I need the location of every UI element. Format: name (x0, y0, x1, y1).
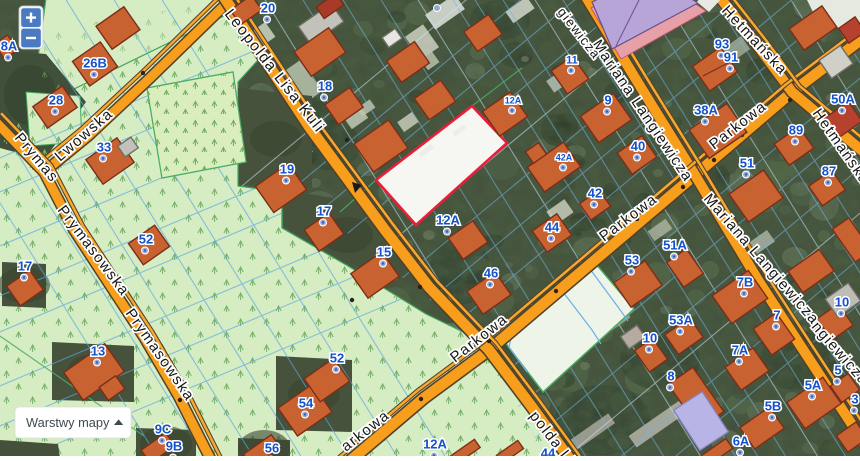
svg-text:52: 52 (330, 351, 344, 366)
svg-text:8: 8 (667, 369, 674, 384)
svg-text:44: 44 (541, 446, 556, 457)
svg-text:18: 18 (318, 79, 332, 94)
svg-text:12A: 12A (436, 213, 460, 228)
svg-text:12A: 12A (505, 96, 522, 106)
svg-text:9C: 9C (155, 422, 172, 437)
svg-text:38A: 38A (694, 103, 718, 118)
svg-text:91: 91 (724, 50, 738, 65)
svg-text:15: 15 (377, 245, 391, 260)
svg-text:5: 5 (834, 363, 841, 378)
svg-text:10: 10 (835, 295, 849, 310)
svg-text:89: 89 (789, 123, 803, 138)
svg-text:9: 9 (604, 93, 611, 108)
svg-text:10: 10 (643, 331, 657, 346)
svg-text:53A: 53A (669, 313, 693, 328)
svg-text:17: 17 (317, 204, 331, 219)
svg-text:5B: 5B (765, 399, 782, 414)
svg-text:87: 87 (822, 164, 836, 179)
svg-text:42: 42 (588, 186, 602, 201)
svg-text:12A: 12A (423, 437, 447, 452)
svg-text:9B: 9B (166, 439, 183, 454)
svg-text:28: 28 (49, 93, 63, 108)
svg-text:3: 3 (851, 392, 858, 407)
svg-text:8A: 8A (1, 39, 18, 54)
svg-text:19: 19 (280, 162, 294, 177)
svg-text:50A: 50A (831, 92, 855, 107)
svg-text:40: 40 (631, 139, 645, 154)
svg-text:33: 33 (97, 140, 111, 155)
svg-text:7: 7 (773, 308, 780, 323)
svg-text:13: 13 (91, 344, 105, 359)
svg-text:6A: 6A (733, 434, 750, 449)
svg-text:51: 51 (740, 156, 754, 171)
svg-text:42A: 42A (556, 153, 573, 163)
svg-text:17: 17 (18, 259, 32, 274)
svg-text:46: 46 (484, 266, 498, 281)
svg-text:26B: 26B (83, 56, 107, 71)
svg-text:53: 53 (625, 253, 639, 268)
svg-text:20: 20 (261, 1, 275, 16)
svg-text:54: 54 (299, 396, 314, 411)
svg-text:5A: 5A (805, 378, 822, 393)
svg-text:7B: 7B (737, 275, 754, 290)
svg-text:52: 52 (139, 232, 153, 247)
svg-text:Warstwy mapy: Warstwy mapy (26, 415, 110, 430)
svg-text:44: 44 (545, 220, 560, 235)
svg-text:56: 56 (265, 441, 279, 456)
svg-text:7A: 7A (732, 343, 749, 358)
svg-text:51A: 51A (663, 238, 687, 253)
svg-text:11: 11 (566, 55, 578, 67)
